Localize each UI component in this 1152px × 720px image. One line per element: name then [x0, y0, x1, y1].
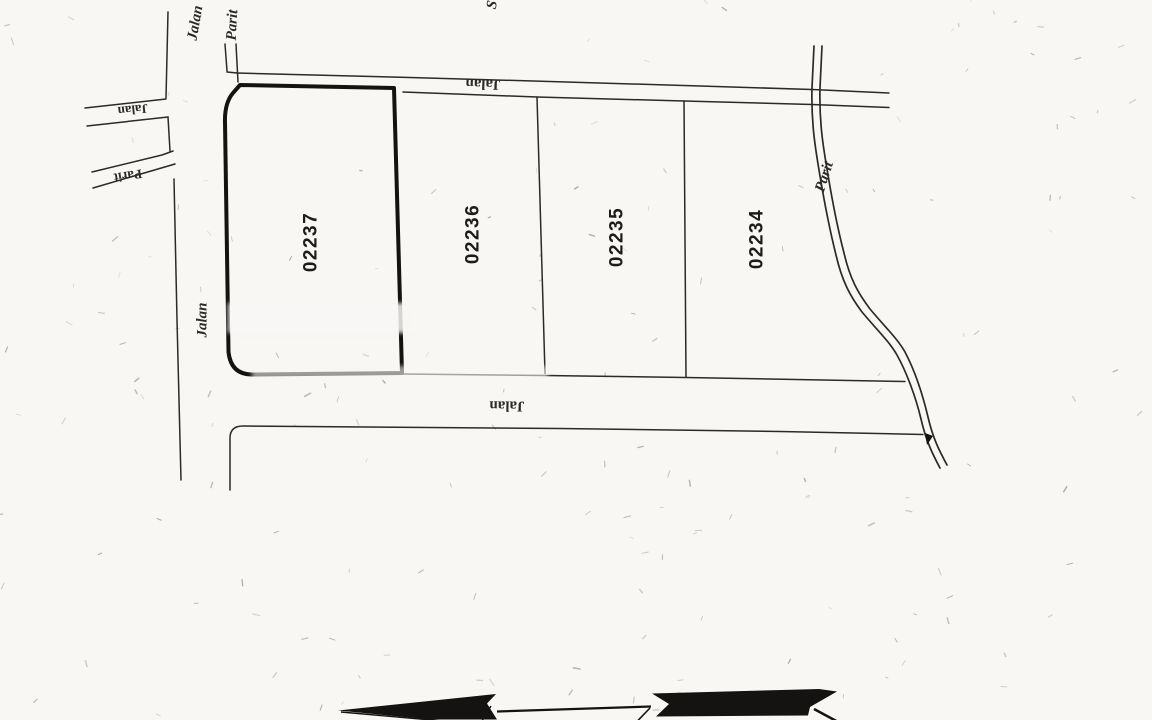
arrow-shaft	[497, 707, 651, 712]
bottom-road-bottom-edge	[230, 426, 923, 490]
lot-divider-02236-02235	[537, 97, 545, 374]
bottom-road-jalan-label: Jalan	[489, 397, 524, 413]
lot-02235-label: 02235	[608, 207, 627, 267]
lot-divider-02235-02234	[684, 101, 686, 377]
canal-line-inner	[820, 46, 947, 465]
arrow-head	[338, 694, 497, 720]
top-road-bottom-edge	[403, 92, 889, 108]
left-road-edge	[166, 12, 181, 480]
arrow-fletch-tail-chevron	[814, 709, 840, 720]
road-lines	[85, 12, 923, 490]
cadastral-map-scan: 02237 02236 02235 02234 Jalan Jalan Jala…	[0, 0, 1152, 720]
left-branch-jalan-label: Jalan	[117, 102, 149, 118]
lot-02234-label: 02234	[748, 209, 767, 269]
left-road-jalan-label: Jalan	[196, 302, 211, 337]
parit-channel-top-left	[225, 44, 238, 82]
lot-02236-label: 02236	[464, 204, 483, 264]
top-left-parit-label: Parit	[225, 9, 242, 41]
top-road-jalan-label: Jalan	[465, 75, 501, 91]
top-road-top-edge	[237, 73, 889, 93]
map-linework	[0, 0, 1152, 720]
arrow-fletch-left-chevron	[636, 708, 650, 720]
map-arrow	[338, 689, 840, 720]
top-road-left-connector	[227, 72, 237, 73]
lot-02237-label: 02237	[302, 212, 321, 272]
arrow-fletch	[652, 689, 837, 717]
parit-canal-right	[812, 46, 947, 468]
scan-noise-specks	[1, 0, 1142, 716]
scan-fade-patches	[228, 303, 548, 379]
canal-line-outer	[812, 46, 940, 468]
